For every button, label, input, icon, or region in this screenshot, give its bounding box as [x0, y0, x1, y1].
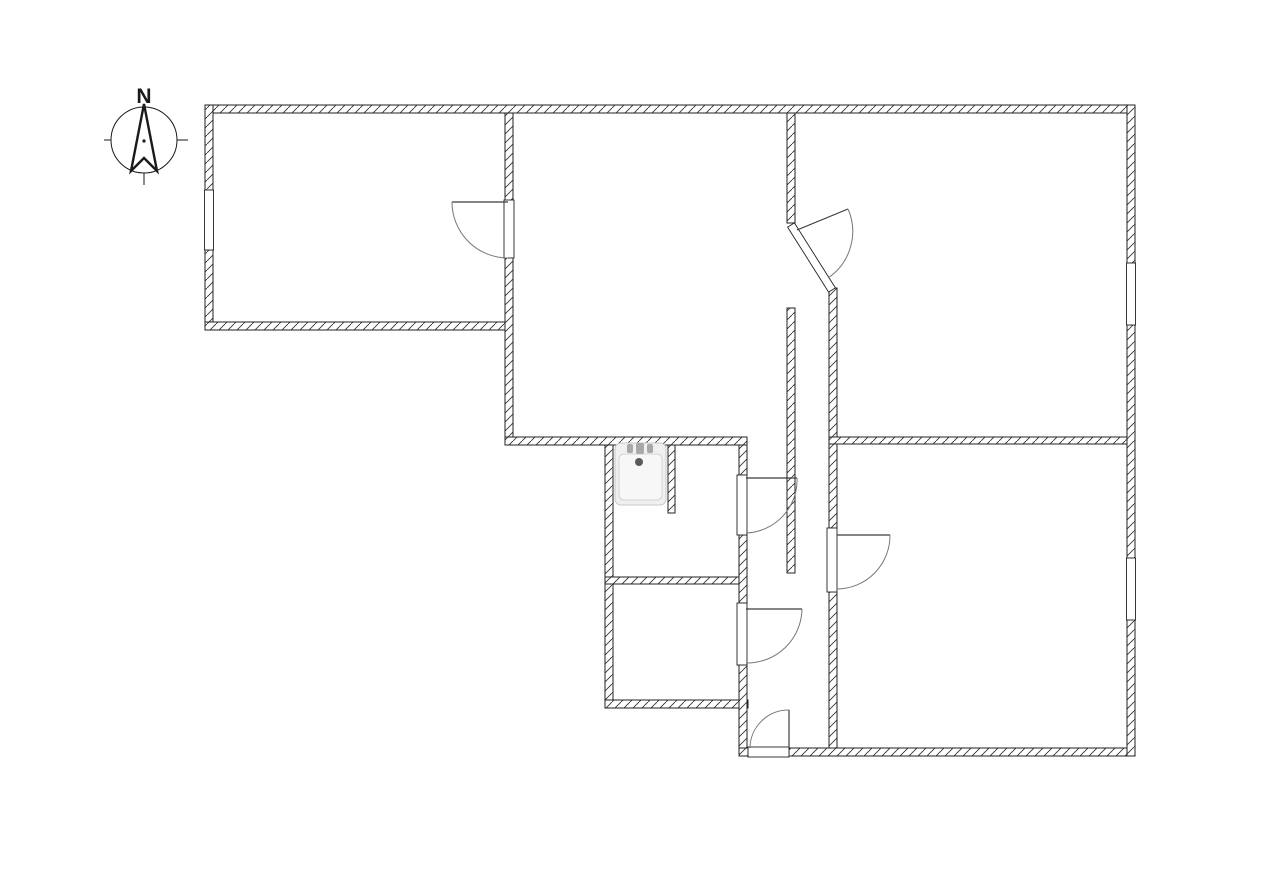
- wall-left-below-window: [205, 250, 213, 330]
- sink-fixture: [615, 443, 666, 505]
- compass-rose: N: [104, 85, 188, 185]
- wall-bath-east-middle: [739, 535, 747, 603]
- wall-top: [205, 105, 1135, 113]
- door-entrance-arc: [750, 710, 789, 748]
- wall-right-between-windows: [1127, 325, 1135, 558]
- wall-right-above-window1: [1127, 105, 1135, 263]
- wall-topleft-room-bottom: [205, 322, 513, 330]
- wall-bath-east-lower: [739, 665, 747, 748]
- sink-faucet: [647, 444, 653, 453]
- window-right-top: [1127, 263, 1136, 325]
- wall-sink-niche-stub: [668, 445, 675, 513]
- wall-right-below-window2: [1127, 620, 1135, 756]
- wall-left-above-window: [205, 105, 213, 190]
- compass-center-dot: [142, 139, 145, 142]
- walls-layer: [205, 105, 1135, 756]
- wall-hall-spine: [787, 308, 795, 573]
- wall-wc-bottom: [605, 700, 748, 708]
- floor-plan-drawing: N: [0, 0, 1280, 888]
- door-gap-topleft-room: [504, 200, 514, 258]
- wall-bottom-left-stub: [739, 748, 748, 756]
- door-wc-arc: [746, 609, 802, 663]
- door-bottomright-room-arc: [837, 535, 890, 589]
- floor-plan-page: N: [0, 0, 1280, 888]
- door-gap-topright-chamfer: [788, 223, 836, 292]
- door-topleft-room-arc: [452, 202, 508, 258]
- door-gap-bottomright-room: [827, 528, 837, 592]
- door-gap-entrance: [748, 747, 789, 757]
- wall-middle-topright-divider: [787, 113, 795, 223]
- wall-bottom: [789, 748, 1135, 756]
- wall-topleft-middle-divider: [505, 113, 513, 445]
- window-left: [205, 190, 214, 250]
- wall-east-upper: [829, 288, 837, 528]
- wall-bath-east-upper: [739, 445, 747, 475]
- wall-bath-wc-divider: [605, 577, 747, 584]
- door-gap-wc: [737, 603, 747, 665]
- door-topright-room-arc: [828, 209, 853, 278]
- sink-drain: [635, 458, 643, 466]
- door-topright-room-leaf: [797, 209, 848, 230]
- sink-faucet: [627, 444, 633, 453]
- compass-needle: [131, 104, 157, 171]
- wall-right-rooms-divider: [829, 437, 1130, 444]
- window-right-bottom: [1127, 558, 1136, 620]
- sink-faucet: [636, 443, 644, 454]
- door-gap-bathroom: [737, 475, 747, 535]
- wall-east-lower: [829, 592, 837, 748]
